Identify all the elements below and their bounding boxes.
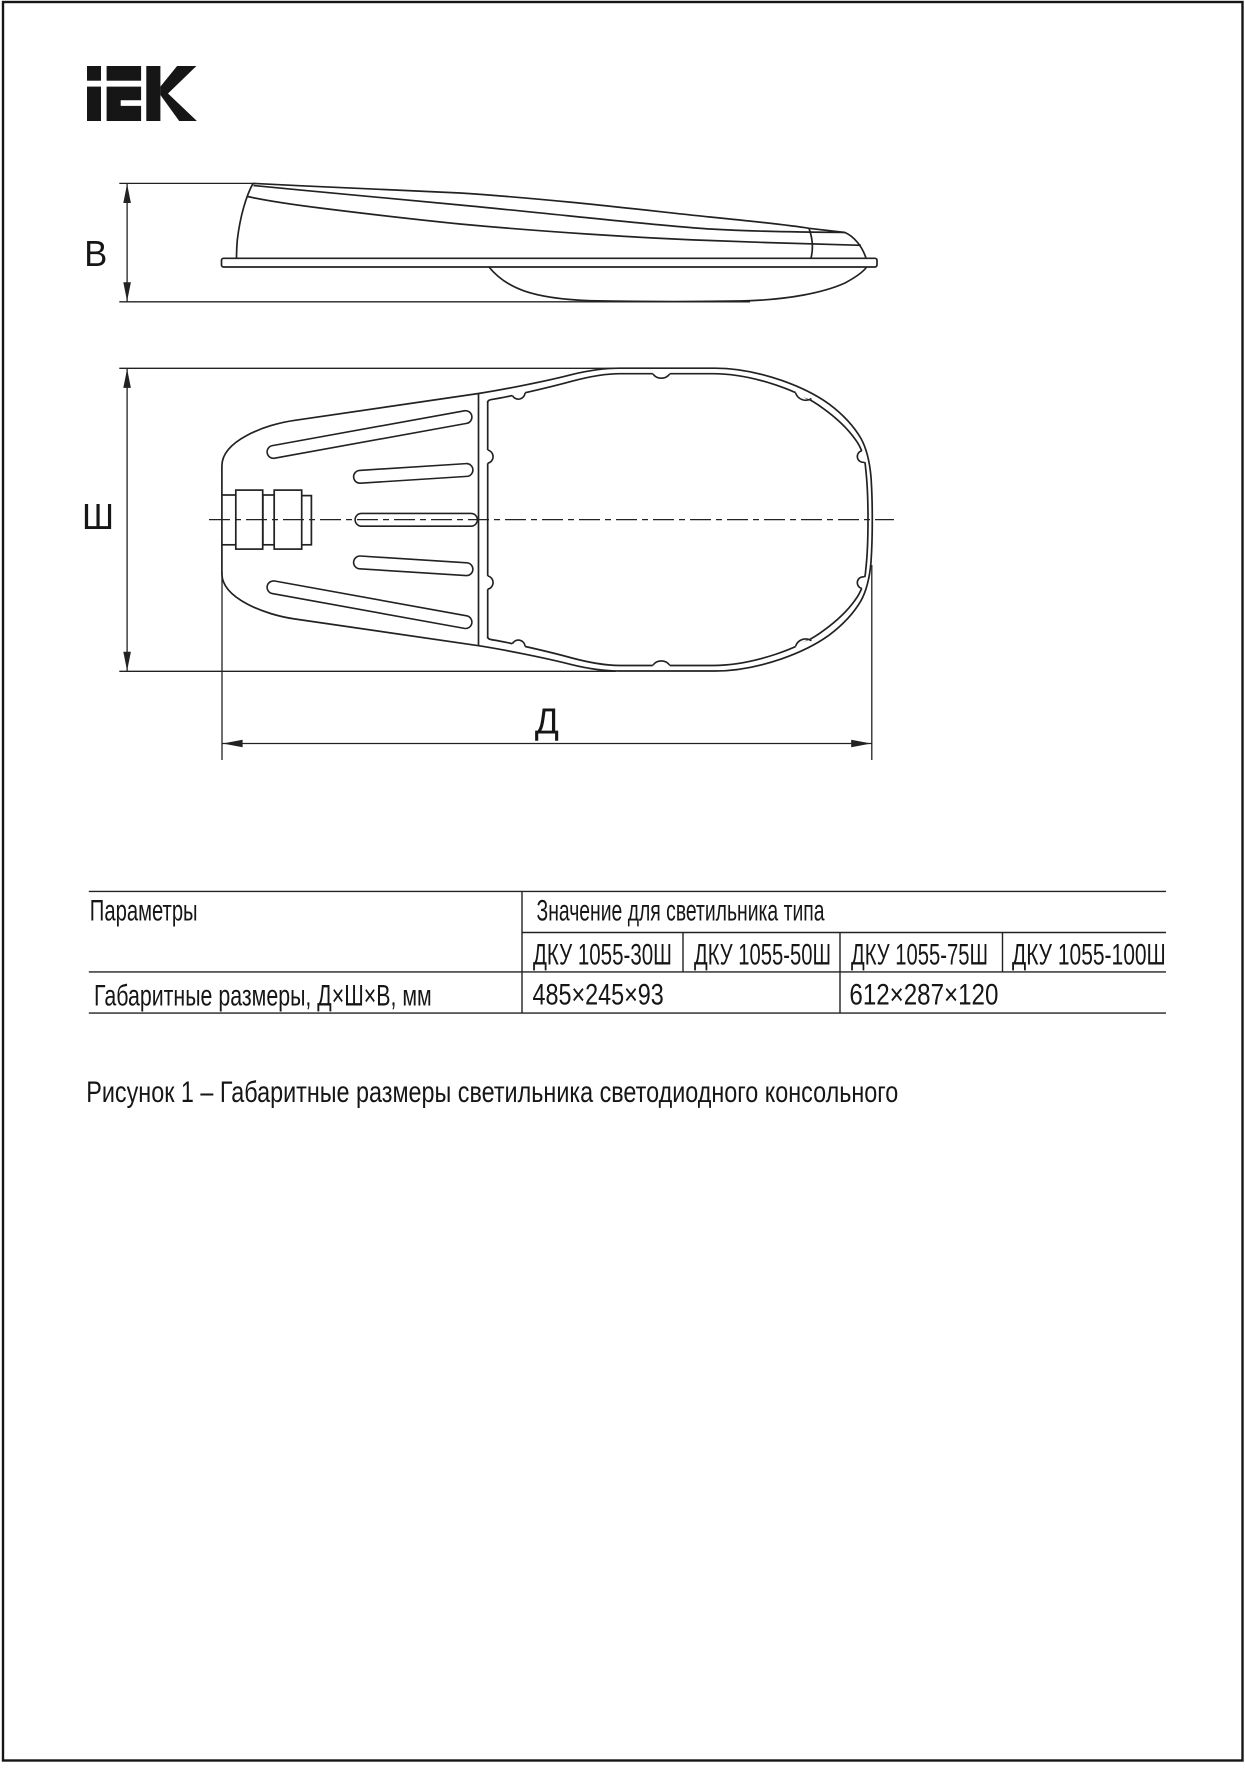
svg-text:Д: Д [535, 701, 559, 742]
svg-text:Параметры: Параметры [90, 895, 198, 928]
svg-text:ДКУ 1055-75Ш: ДКУ 1055-75Ш [851, 938, 988, 971]
svg-text:ДКУ 1055-50Ш: ДКУ 1055-50Ш [694, 938, 831, 971]
svg-text:Рисунок 1 – Габаритные размеры: Рисунок 1 – Габаритные размеры светильни… [86, 1076, 898, 1109]
svg-text:Значение для светильника типа: Значение для светильника типа [537, 895, 825, 928]
svg-text:612×287×120: 612×287×120 [849, 978, 998, 1011]
svg-text:ДКУ 1055-100Ш: ДКУ 1055-100Ш [1012, 938, 1166, 971]
svg-text:В: В [84, 233, 107, 274]
svg-text:Ш: Ш [82, 496, 114, 537]
svg-text:ДКУ 1055-30Ш: ДКУ 1055-30Ш [533, 938, 672, 971]
svg-text:Габаритные размеры, Д×Ш×В, мм: Габаритные размеры, Д×Ш×В, мм [94, 979, 432, 1012]
svg-text:485×245×93: 485×245×93 [533, 978, 664, 1011]
